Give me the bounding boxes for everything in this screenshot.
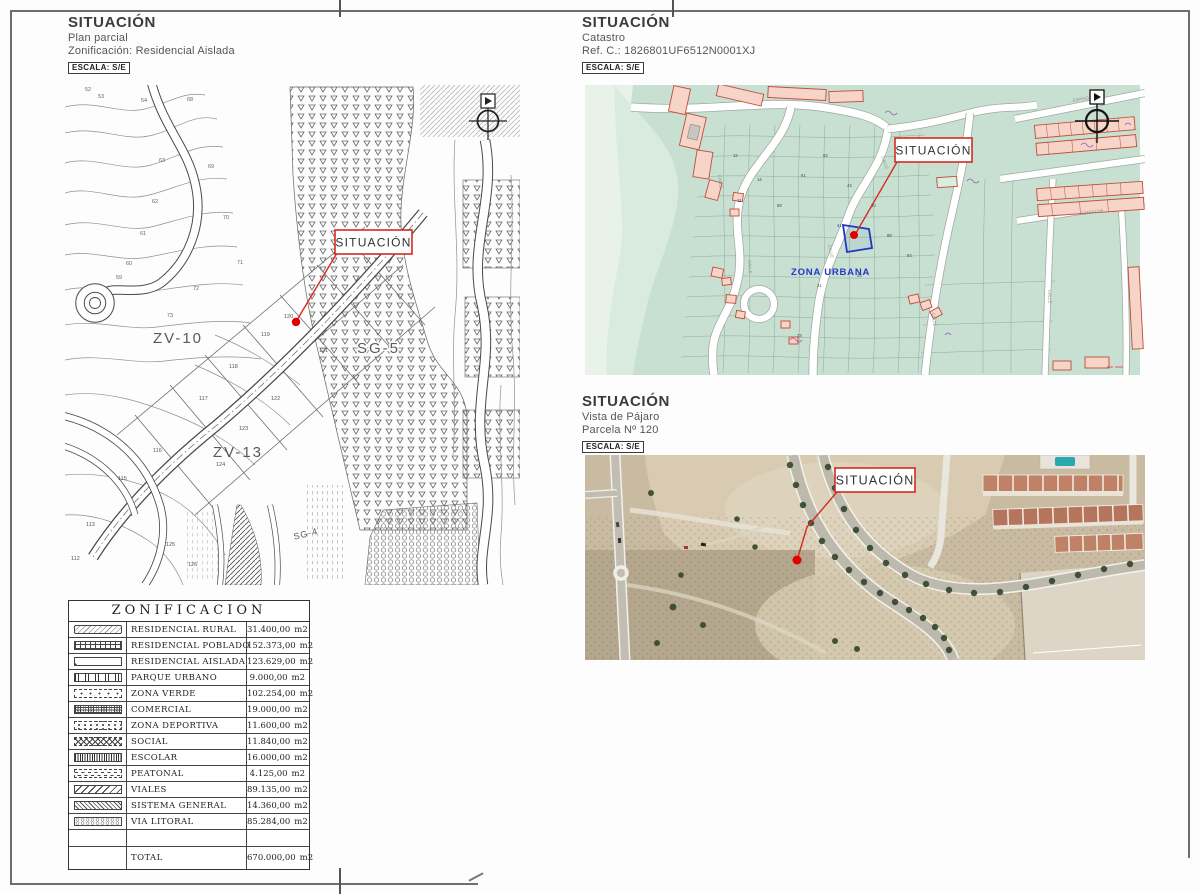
zone-name: PEATONAL [127, 766, 247, 781]
parcel-number: 62 [823, 153, 828, 158]
contour-number: 60 [126, 261, 132, 267]
table-row-empty [69, 830, 309, 847]
legend-swatch [74, 705, 122, 714]
plan-subtitle-1: Plan parcial [68, 32, 235, 44]
legend-swatch [74, 753, 122, 762]
parcel-number: 124 [216, 462, 225, 468]
zone-area: 11.600,00 [247, 721, 290, 731]
table-row: ZONA VERDE 102.254,00m2 [69, 686, 309, 702]
zone-name: RESIDENCIAL POBLADO [127, 638, 247, 653]
contour-number: 52 [85, 87, 91, 93]
total-label: TOTAL [127, 847, 247, 869]
table-row: ZONA DEPORTIVA 11.600,00m2 [69, 718, 309, 734]
plan-map: ZV-10 ZV-13 SG-5 SG-4 52 53 54 68 63 69 … [65, 85, 520, 585]
location-marker [850, 231, 858, 239]
unit: m2 [294, 753, 307, 763]
contour-number: 62 [152, 199, 158, 205]
unit: m2 [300, 657, 313, 667]
catastro-ref: Ref. C.: 1826801UF6512N0001XJ [582, 45, 755, 57]
zone-area: 9.000,00 [250, 673, 288, 683]
unit: m2 [294, 721, 307, 731]
parcel-number: 120 [284, 314, 293, 320]
contour-number: 72 [193, 286, 199, 292]
parcel-number: 44 [847, 183, 852, 188]
legend-swatch [74, 641, 122, 650]
contour-number: 69 [208, 164, 214, 170]
zone-name: VIA LITORAL [127, 814, 247, 829]
contour-number: 63 [159, 158, 165, 164]
table-row: RESIDENCIAL AISLADA 123.629,00m2 [69, 654, 309, 670]
plan-header: SITUACIÓN Plan parcial Zonificación: Res… [68, 14, 235, 75]
aerial-subtitle-2: Parcela Nº 120 [582, 424, 670, 436]
parcel-number: 125 [166, 542, 175, 548]
escala-badge: ESCALA: S/E [582, 441, 644, 453]
contour-number: 53 [98, 94, 104, 100]
escala-badge: ESCALA: S/E [68, 62, 130, 74]
contour-number: 73 [167, 313, 173, 319]
zone-name: ZONA DEPORTIVA [127, 718, 247, 733]
hatch-zone [420, 85, 520, 137]
legend-swatch [74, 785, 122, 794]
pattern-zones [185, 85, 520, 585]
border-bottom [10, 883, 478, 885]
unit: m2 [294, 737, 307, 747]
triangle-pattern-zone [290, 87, 467, 530]
aerial-map-svg: SITUACIÓN [585, 455, 1145, 660]
swimming-pool [1055, 457, 1075, 466]
contour-number: 70 [223, 215, 229, 221]
legend-swatch [74, 737, 122, 746]
zone-label: SG-5 [357, 340, 400, 357]
callout-label: SITUACIÓN [836, 473, 915, 488]
catastro-map: 12 14 11 58 61 62 44 30 41 88 84 24 21 2… [585, 85, 1145, 375]
townhouse-row [1055, 533, 1144, 552]
parcel-number: 122 [271, 396, 280, 402]
table-row: SISTEMA GENERAL 14.360,00m2 [69, 798, 309, 814]
legend-swatch [74, 721, 122, 730]
hatch-band [225, 505, 261, 585]
parcel-number: 123 [239, 426, 248, 432]
table-row: RESIDENCIAL RURAL 31.400,00m2 [69, 622, 309, 638]
parcel-number: 115 [118, 476, 127, 482]
register-tick [339, 0, 341, 17]
table-row: RESIDENCIAL POBLADO 152.373,00m2 [69, 638, 309, 654]
street-label: CALLE [1047, 290, 1053, 304]
contour-number: 68 [187, 97, 193, 103]
zone-area: 89.135,00 [247, 785, 290, 795]
register-tick [339, 868, 341, 894]
zone-name: ESCOLAR [127, 750, 247, 765]
parcel-number: 119 [261, 332, 270, 338]
zonification-table: ZONIFICACION RESIDENCIAL RURAL 31.400,00… [68, 600, 310, 870]
parcel-number: 23 [797, 333, 802, 338]
unit: m2 [300, 853, 313, 863]
unit: m2 [292, 769, 305, 779]
zone-area: 19.000,00 [247, 705, 290, 715]
unit: m2 [294, 801, 307, 811]
plan-title: SITUACIÓN [68, 14, 235, 31]
zone-area: 16.000,00 [247, 753, 290, 763]
unit: m2 [294, 625, 307, 635]
parcel-number: 113 [86, 522, 95, 528]
legend-swatch [74, 625, 122, 634]
zone-area: 31.400,00 [247, 625, 290, 635]
zone-area: 11.840,00 [247, 737, 290, 747]
parcel-number: 84 [907, 253, 912, 258]
border-break-mark [468, 872, 483, 881]
location-marker [292, 318, 300, 326]
legend-swatch [74, 801, 122, 810]
aerial-title: SITUACIÓN [582, 393, 670, 410]
zone-name: PARQUE URBANO [127, 670, 247, 685]
table-row-total: TOTAL 670.000,00m2 [69, 847, 309, 869]
callout-label: SITUACIÓN [895, 143, 971, 158]
unit: m2 [300, 689, 313, 699]
aerial-map: SITUACIÓN [585, 455, 1145, 660]
zone-label: ZV-10 [153, 330, 203, 347]
zone-name: SISTEMA GENERAL [127, 798, 247, 813]
aerial-subtitle-1: Vista de Pájaro [582, 411, 670, 423]
honeycomb-zone [365, 503, 480, 585]
total-area: 670.000,00 [247, 853, 296, 863]
unit: m2 [294, 705, 307, 715]
parcel-number: 117 [199, 396, 208, 402]
escala-badge: ESCALA: S/E [582, 62, 644, 74]
aerial-header: SITUACIÓN Vista de Pájaro Parcela Nº 120… [582, 393, 670, 454]
zone-name: VIALES [127, 782, 247, 797]
parcel-number: 14 [757, 177, 762, 182]
plan-subtitle-2: Zonificación: Residencial Aislada [68, 45, 235, 57]
legend-swatch [74, 769, 122, 778]
catastro-title: SITUACIÓN [582, 14, 755, 31]
catastro-map-svg: 12 14 11 58 61 62 44 30 41 88 84 24 21 2… [585, 85, 1145, 375]
zone-area: 123.629,00 [247, 657, 296, 667]
zona-urbana-label: ZONA URBANA [791, 267, 870, 278]
zone-area: 102.254,00 [247, 689, 296, 699]
border-right [1188, 10, 1190, 858]
contour-number: 59 [116, 275, 122, 281]
table-title: ZONIFICACION [69, 601, 309, 622]
callout-label: SITUACIÓN [335, 235, 411, 250]
triangle-pattern-block [463, 410, 520, 478]
zone-area: 85.284,00 [247, 817, 290, 827]
location-marker [793, 556, 802, 565]
page: { "headers": { "plan": {"title":"SITUACI… [0, 0, 1200, 894]
legend-swatch [74, 657, 122, 666]
zone-area: 14.360,00 [247, 801, 290, 811]
border-left [10, 10, 12, 884]
contour-number: 54 [141, 98, 147, 104]
zone-name: RESIDENCIAL AISLADA [127, 654, 247, 669]
table-row: PARQUE URBANO 9.000,00m2 [69, 670, 309, 686]
parcel-number: 126 [188, 562, 197, 568]
zone-name: SOCIAL [127, 734, 247, 749]
townhouse-row [983, 475, 1123, 496]
parcel-number: 12 [733, 153, 738, 158]
parcel-number: 112 [71, 556, 80, 562]
parcel-number: 41 [837, 223, 842, 228]
plan-map-svg: ZV-10 ZV-13 SG-5 SG-4 52 53 54 68 63 69 … [65, 85, 520, 585]
unit: m2 [300, 641, 313, 651]
border-top [10, 10, 1190, 12]
zone-area: 152.373,00 [247, 641, 296, 651]
unit: m2 [292, 673, 305, 683]
zone-name: RESIDENCIAL RURAL [127, 622, 247, 637]
unit: m2 [294, 817, 307, 827]
legend-swatch [74, 673, 122, 682]
unit: m2 [294, 785, 307, 795]
table-row: PEATONAL 4.125,00m2 [69, 766, 309, 782]
parcel-number: 121 [319, 348, 328, 354]
zone-area: 4.125,00 [250, 769, 288, 779]
contour-number: 71 [237, 260, 243, 266]
table-row: ESCOLAR 16.000,00m2 [69, 750, 309, 766]
table-row: SOCIAL 11.840,00m2 [69, 734, 309, 750]
legend-swatch [74, 689, 122, 698]
parcel-number: 116 [153, 448, 162, 454]
parcel-number: 61 [801, 173, 806, 178]
parcel-number: 11 [737, 198, 742, 203]
table-row: VIA LITORAL 85.284,00m2 [69, 814, 309, 830]
legend-swatch [74, 817, 122, 826]
catastro-header: SITUACIÓN Catastro Ref. C.: 1826801UF651… [582, 14, 755, 75]
table-row: COMERCIAL 19.000,00m2 [69, 702, 309, 718]
parcel-number: 58 [777, 203, 782, 208]
parcel-number: 21 [817, 283, 822, 288]
zone-name: COMERCIAL [127, 702, 247, 717]
parcel-number: 88 [887, 233, 892, 238]
contour-number: 61 [140, 231, 146, 237]
parcel-number: 118 [229, 364, 238, 370]
zone-label: ZV-13 [213, 444, 263, 461]
catastro-subtitle-1: Catastro [582, 32, 755, 44]
zone-name: ZONA VERDE [127, 686, 247, 701]
table-row: VIALES 89.135,00m2 [69, 782, 309, 798]
cul-de-sac-island [90, 298, 101, 309]
